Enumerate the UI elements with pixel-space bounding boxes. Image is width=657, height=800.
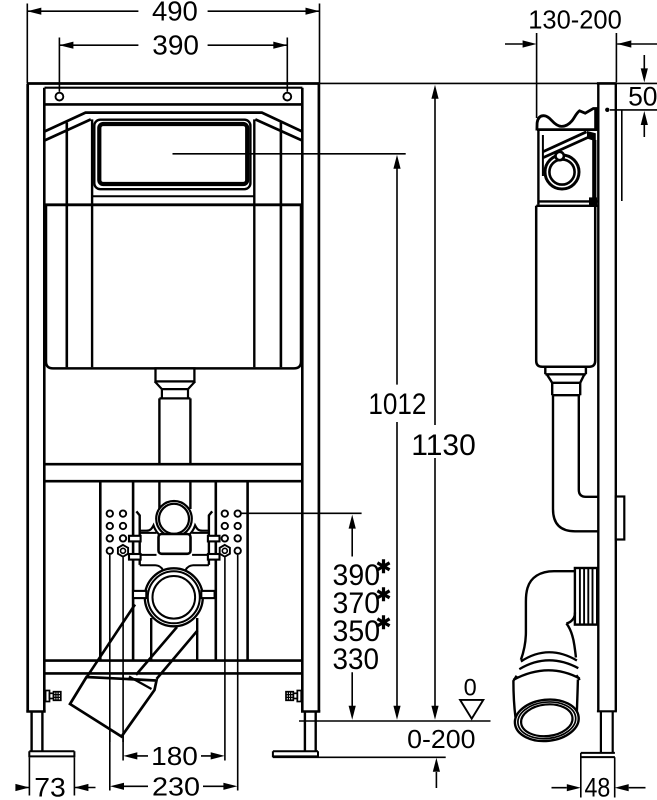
svg-text:1012: 1012 xyxy=(368,387,426,420)
svg-text:130-200: 130-200 xyxy=(528,7,622,35)
svg-text:330: 330 xyxy=(333,643,380,676)
svg-text:0: 0 xyxy=(464,674,477,702)
svg-text:50: 50 xyxy=(628,82,657,112)
svg-text:1130: 1130 xyxy=(411,429,476,462)
svg-text:230: 230 xyxy=(152,772,200,800)
svg-text:390: 390 xyxy=(152,29,199,60)
svg-text:73: 73 xyxy=(34,772,66,800)
svg-text:0-200: 0-200 xyxy=(407,725,475,754)
svg-text:180: 180 xyxy=(151,742,198,771)
svg-text:48: 48 xyxy=(584,773,610,800)
svg-text:490: 490 xyxy=(152,0,198,26)
